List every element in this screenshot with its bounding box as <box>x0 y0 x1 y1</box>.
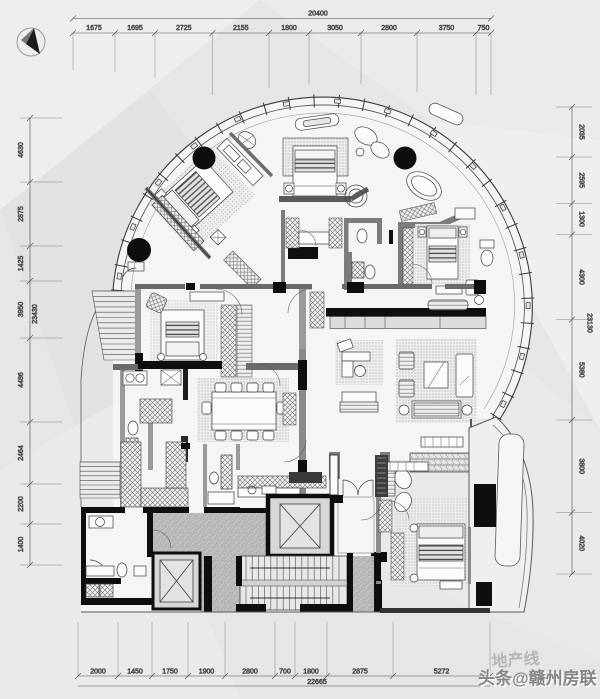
svg-text:2200: 2200 <box>18 496 25 512</box>
svg-text:1900: 1900 <box>199 669 215 676</box>
svg-text:20400: 20400 <box>308 11 328 18</box>
svg-text:1425: 1425 <box>18 256 25 272</box>
svg-text:1750: 1750 <box>162 669 178 676</box>
svg-text:2875: 2875 <box>18 206 25 222</box>
svg-text:2800: 2800 <box>381 25 397 32</box>
svg-text:1800: 1800 <box>303 669 319 676</box>
svg-text:1450: 1450 <box>127 669 143 676</box>
svg-text:3750: 3750 <box>439 25 455 32</box>
svg-text:2155: 2155 <box>233 25 249 32</box>
svg-text:1675: 1675 <box>86 25 102 32</box>
svg-text:2725: 2725 <box>176 25 192 32</box>
svg-text:5380: 5380 <box>578 362 585 378</box>
svg-text:700: 700 <box>279 669 291 676</box>
svg-text:2035: 2035 <box>578 124 585 140</box>
svg-text:3050: 3050 <box>327 25 343 32</box>
svg-text:4020: 4020 <box>578 535 585 551</box>
svg-text:1695: 1695 <box>127 25 143 32</box>
svg-text:3950: 3950 <box>18 302 25 318</box>
svg-text:4300: 4300 <box>578 269 585 285</box>
svg-text:2000: 2000 <box>90 669 106 676</box>
svg-text:23430: 23430 <box>32 304 39 324</box>
svg-text:1800: 1800 <box>281 25 297 32</box>
svg-text:4630: 4630 <box>18 142 25 158</box>
svg-text:头条@赣州房联: 头条@赣州房联 <box>478 668 597 688</box>
svg-text:2464: 2464 <box>18 445 25 461</box>
svg-text:4486: 4486 <box>18 372 25 388</box>
svg-text:2595: 2595 <box>578 172 585 188</box>
svg-text:5272: 5272 <box>434 669 450 676</box>
svg-text:1400: 1400 <box>18 537 25 553</box>
svg-text:750: 750 <box>478 25 490 32</box>
svg-text:22665: 22665 <box>307 679 327 686</box>
svg-text:2875: 2875 <box>352 669 368 676</box>
svg-text:2800: 2800 <box>242 669 258 676</box>
svg-text:23130: 23130 <box>586 313 593 333</box>
svg-text:1300: 1300 <box>578 211 585 227</box>
svg-text:3800: 3800 <box>578 458 585 474</box>
